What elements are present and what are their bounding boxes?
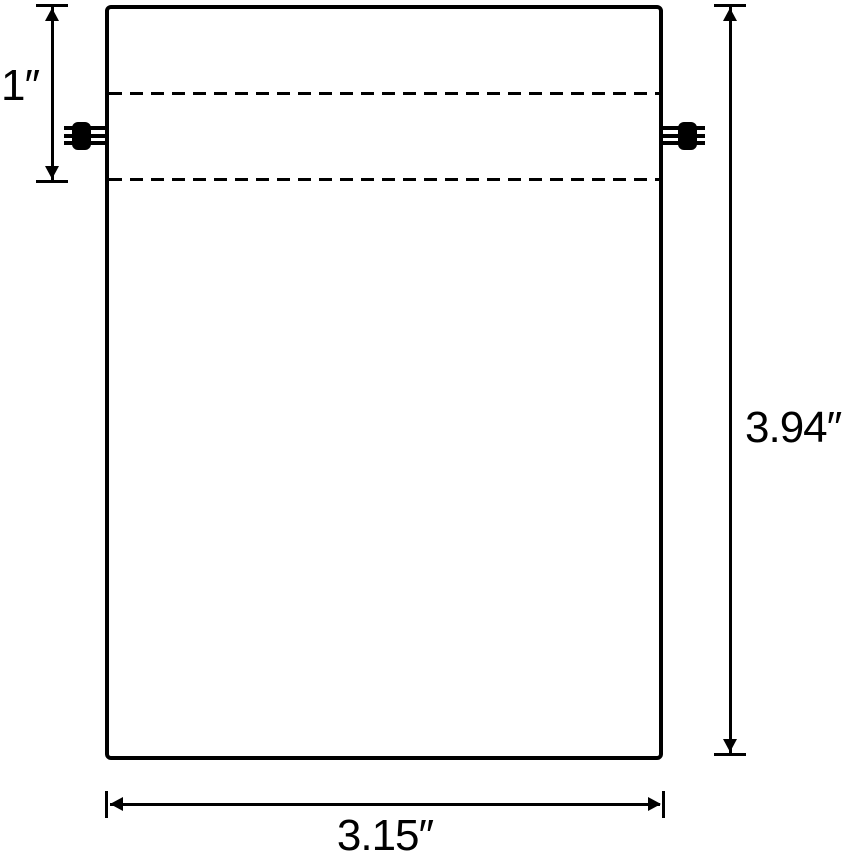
dimension-cap <box>662 791 665 818</box>
cord-strand <box>89 141 107 145</box>
drawstring-channel-bottom-line <box>109 178 659 181</box>
channel-height-label: 1″ <box>1 64 39 108</box>
dimension-diagram: 1″ 3.94″ 3.15″ <box>0 0 844 856</box>
cord-strand <box>89 134 107 138</box>
bag-outline <box>105 5 663 760</box>
bag-height-label: 3.94″ <box>745 406 841 450</box>
cord-end-strand <box>696 141 705 145</box>
drawstring-channel-top-line <box>109 92 659 95</box>
cord-strand <box>661 141 679 145</box>
dimension-line <box>729 6 732 754</box>
cord-lock-right-body <box>678 122 697 150</box>
cord-lock-left-body <box>72 122 91 150</box>
cord-strand <box>89 126 107 130</box>
arrow-up-icon <box>723 8 737 21</box>
arrow-up-icon <box>45 8 59 21</box>
arrow-left-icon <box>110 797 123 811</box>
dimension-line <box>51 6 54 181</box>
arrow-right-icon <box>648 797 661 811</box>
arrow-down-icon <box>723 739 737 752</box>
cord-strand <box>661 126 679 130</box>
dimension-cap <box>105 791 108 818</box>
bag-width-label: 3.15″ <box>285 814 485 856</box>
cord-strand <box>661 134 679 138</box>
cord-end-strand <box>696 134 705 138</box>
dimension-line <box>110 803 660 806</box>
cord-end-strand <box>696 126 705 130</box>
arrow-down-icon <box>45 166 59 179</box>
